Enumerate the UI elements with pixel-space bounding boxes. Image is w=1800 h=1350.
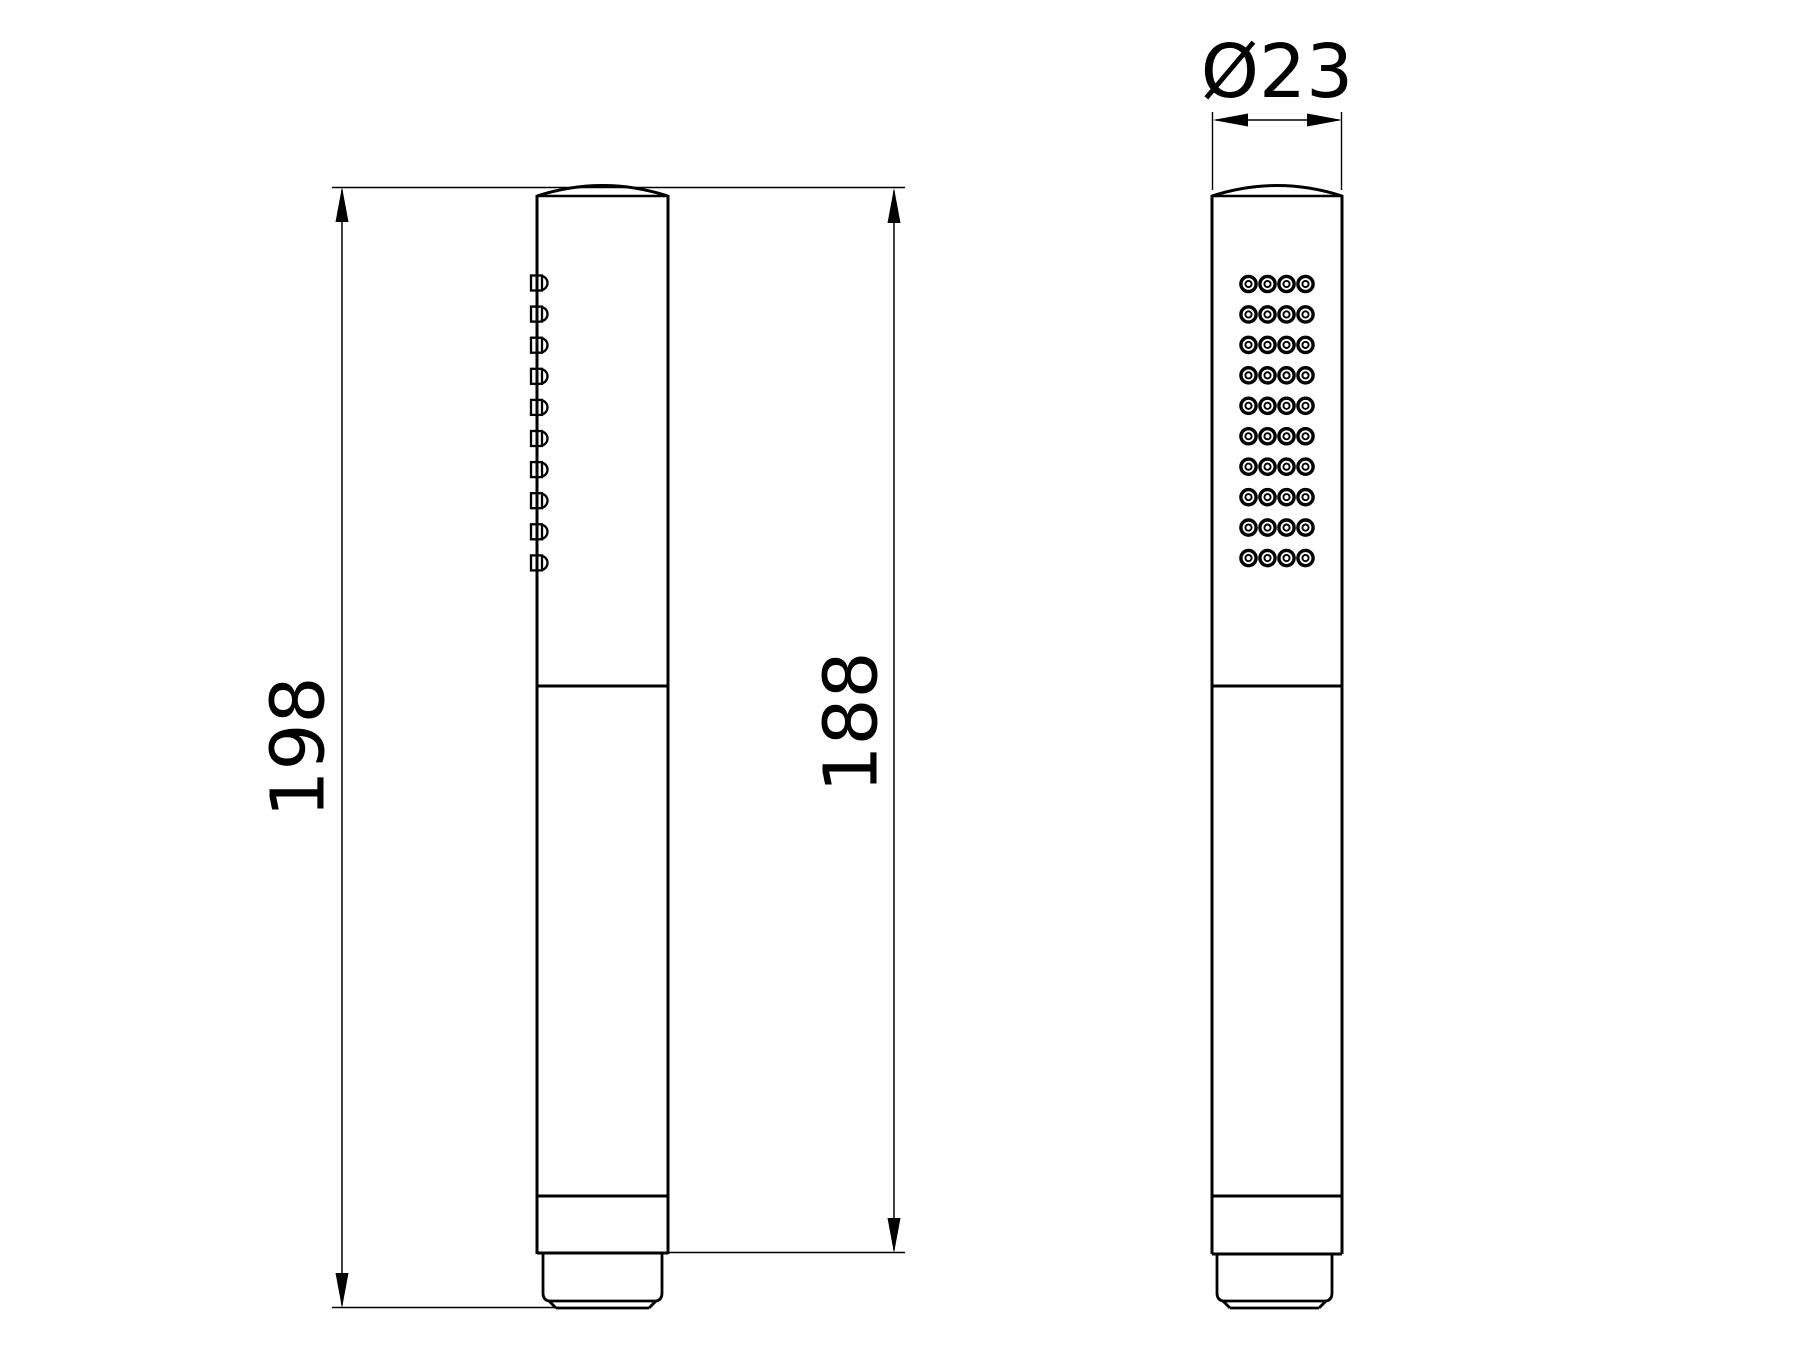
front-nozzle-inner-ring (1264, 311, 1270, 317)
dim-23-arrow-right (1307, 114, 1342, 127)
front-nozzle-inner-ring (1283, 525, 1289, 531)
dim-198-arrow-up (336, 187, 349, 222)
front-nozzle-inner-ring (1283, 342, 1289, 348)
front-nozzle-outer-ring (1260, 459, 1275, 474)
front-nozzle-inner-ring (1302, 281, 1308, 287)
front-top-dome (1212, 186, 1342, 197)
front-nozzle-inner-ring (1302, 555, 1308, 561)
front-nozzle-inner-ring (1283, 494, 1289, 500)
front-nozzle-inner-ring (1264, 403, 1270, 409)
front-nozzle-outer-ring (1279, 520, 1294, 535)
front-nozzle-outer-ring (1241, 459, 1256, 474)
dim-23-arrow-left (1213, 114, 1248, 127)
front-nozzle-inner-ring (1283, 464, 1289, 470)
front-nozzle-outer-ring (1298, 550, 1313, 565)
front-nozzle-outer-ring (1279, 459, 1294, 474)
front-nozzle-outer-ring (1279, 398, 1294, 413)
front-nozzle-outer-ring (1298, 276, 1313, 291)
front-nozzle-inner-ring (1264, 555, 1270, 561)
front-nozzle-inner-ring (1264, 342, 1270, 348)
front-nozzle-outer-ring (1298, 368, 1313, 383)
front-nozzle-outer-ring (1279, 337, 1294, 352)
front-nozzle-outer-ring (1260, 337, 1275, 352)
front-nozzle-outer-ring (1241, 398, 1256, 413)
front-nozzle-outer-ring (1279, 490, 1294, 505)
front-nozzle-outer-ring (1298, 307, 1313, 322)
front-nozzle-inner-ring (1245, 433, 1251, 439)
drawing-canvas: 198 188 Ø23 (0, 0, 1800, 1350)
front-nozzle-inner-ring (1245, 494, 1251, 500)
front-nozzle-inner-ring (1283, 281, 1289, 287)
front-nozzle-inner-ring (1302, 403, 1308, 409)
front-nozzle-outer-ring (1279, 368, 1294, 383)
front-nozzle-inner-ring (1302, 311, 1308, 317)
front-nozzle-inner-ring (1283, 311, 1289, 317)
front-nozzle-outer-ring (1298, 337, 1313, 352)
front-nozzle-outer-ring (1241, 307, 1256, 322)
front-nozzle-inner-ring (1245, 281, 1251, 287)
dim-188-label: 188 (809, 651, 895, 792)
front-nozzle-outer-ring (1241, 520, 1256, 535)
front-nozzle-outer-ring (1260, 490, 1275, 505)
dimension-diameter-23: Ø23 (1201, 29, 1353, 190)
front-nozzle-inner-ring (1264, 464, 1270, 470)
dim-198-label: 198 (256, 676, 342, 817)
side-nozzle-group (531, 276, 548, 571)
front-nozzle-inner-ring (1302, 525, 1308, 531)
front-nozzle-outer-ring (1241, 337, 1256, 352)
dim-188-arrow-up (888, 188, 901, 223)
front-nozzle-outer-ring (1298, 459, 1313, 474)
front-nozzle-inner-ring (1245, 464, 1251, 470)
front-nozzle-outer-ring (1241, 368, 1256, 383)
front-nozzle-inner-ring (1245, 342, 1251, 348)
front-view (1212, 186, 1342, 1309)
technical-drawing: 198 188 Ø23 (0, 0, 1800, 1350)
front-nozzle-outer-ring (1298, 490, 1313, 505)
dim-188-arrow-down (888, 1218, 901, 1253)
front-nozzle-inner-ring (1264, 372, 1270, 378)
front-nozzle-inner-ring (1245, 525, 1251, 531)
front-nozzle-outer-ring (1241, 276, 1256, 291)
front-nozzle-inner-ring (1283, 372, 1289, 378)
front-nozzle-outer-ring (1279, 307, 1294, 322)
front-nozzle-inner-ring (1302, 464, 1308, 470)
front-nozzle-inner-ring (1283, 555, 1289, 561)
front-nozzle-inner-ring (1302, 494, 1308, 500)
front-nozzle-outer-ring (1298, 398, 1313, 413)
front-nozzle-outer-ring (1260, 520, 1275, 535)
front-nozzle-inner-ring (1302, 372, 1308, 378)
front-nozzle-inner-ring (1264, 281, 1270, 287)
front-nozzle-inner-ring (1245, 372, 1251, 378)
front-nozzle-inner-ring (1264, 494, 1270, 500)
front-nozzle-inner-ring (1245, 311, 1251, 317)
front-nozzle-outer-ring (1279, 276, 1294, 291)
front-nozzle-outer-ring (1260, 429, 1275, 444)
front-nozzle-inner-ring (1283, 433, 1289, 439)
front-nozzle-outer-ring (1279, 550, 1294, 565)
front-nozzle-inner-ring (1245, 555, 1251, 561)
front-nozzle-inner-ring (1283, 403, 1289, 409)
front-nozzle-outer-ring (1260, 368, 1275, 383)
front-nozzle-outer-ring (1241, 429, 1256, 444)
front-nozzle-outer-ring (1298, 429, 1313, 444)
front-nozzle-inner-ring (1302, 433, 1308, 439)
dim-198-arrow-down (336, 1273, 349, 1308)
dimension-188: 188 (668, 188, 905, 1253)
front-nozzle-outer-ring (1260, 307, 1275, 322)
front-nozzle-inner-ring (1264, 525, 1270, 531)
front-nozzle-outer-ring (1260, 276, 1275, 291)
front-nozzle-outer-ring (1298, 520, 1313, 535)
front-nozzle-inner-ring (1245, 403, 1251, 409)
front-nozzle-outer-ring (1260, 398, 1275, 413)
front-nozzle-outer-ring (1241, 490, 1256, 505)
front-nozzle-outer-ring (1241, 550, 1256, 565)
front-nozzle-outer-ring (1260, 550, 1275, 565)
front-nozzle-grid (1241, 276, 1313, 565)
front-connector-nut (1217, 1254, 1332, 1308)
front-nozzle-outer-ring (1279, 429, 1294, 444)
front-nozzle-inner-ring (1264, 433, 1270, 439)
side-view (531, 186, 668, 1309)
front-nozzle-inner-ring (1302, 342, 1308, 348)
dim-23-label: Ø23 (1201, 29, 1353, 115)
side-connector-nut (543, 1254, 662, 1308)
